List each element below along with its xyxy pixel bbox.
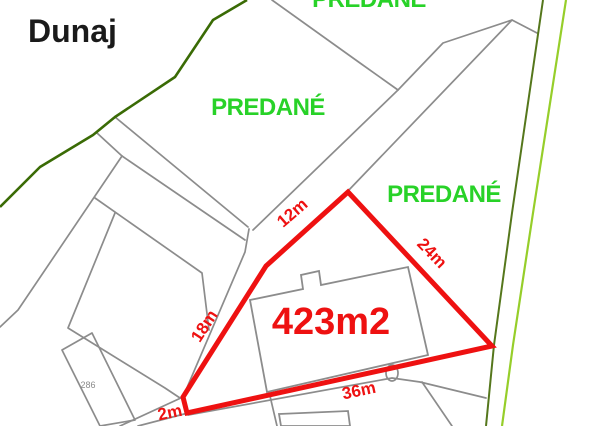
area-title: Dunaj <box>28 13 117 49</box>
side-length-2m: 2m <box>156 401 184 425</box>
parcel-area-label: 423m2 <box>272 301 390 343</box>
right-boundary-olive-line <box>486 0 543 426</box>
small-strip-parcel <box>62 333 135 426</box>
sold-label-right: PREDANÉ <box>387 180 501 208</box>
bottom-building-outline <box>279 411 350 426</box>
road-nw-edge-1 <box>115 117 248 227</box>
cadastral-map: Dunaj PREDANÉ PREDANÉ PREDANÉ 286 423m2 … <box>0 0 600 426</box>
left-parcel-diagonal <box>95 198 209 330</box>
boundary-mountain <box>398 20 537 90</box>
left-parcel-inner-edge <box>68 213 180 398</box>
map-canvas: Dunaj PREDANÉ PREDANÉ PREDANÉ 286 423m2 … <box>0 0 600 426</box>
road-nw-edge-2 <box>97 133 245 240</box>
bottom-parcel-divider <box>270 396 277 426</box>
boundary-top-parcel <box>272 0 398 90</box>
parcel-number-label: 286 <box>80 380 95 390</box>
sold-label-middle: PREDANÉ <box>211 93 325 121</box>
sold-label-top: PREDANÉ <box>312 0 426 13</box>
road-ne-right-edge <box>347 20 512 192</box>
buildings <box>250 267 428 426</box>
side-length-36m: 36m <box>340 378 377 404</box>
side-length-12m: 12m <box>273 195 311 232</box>
